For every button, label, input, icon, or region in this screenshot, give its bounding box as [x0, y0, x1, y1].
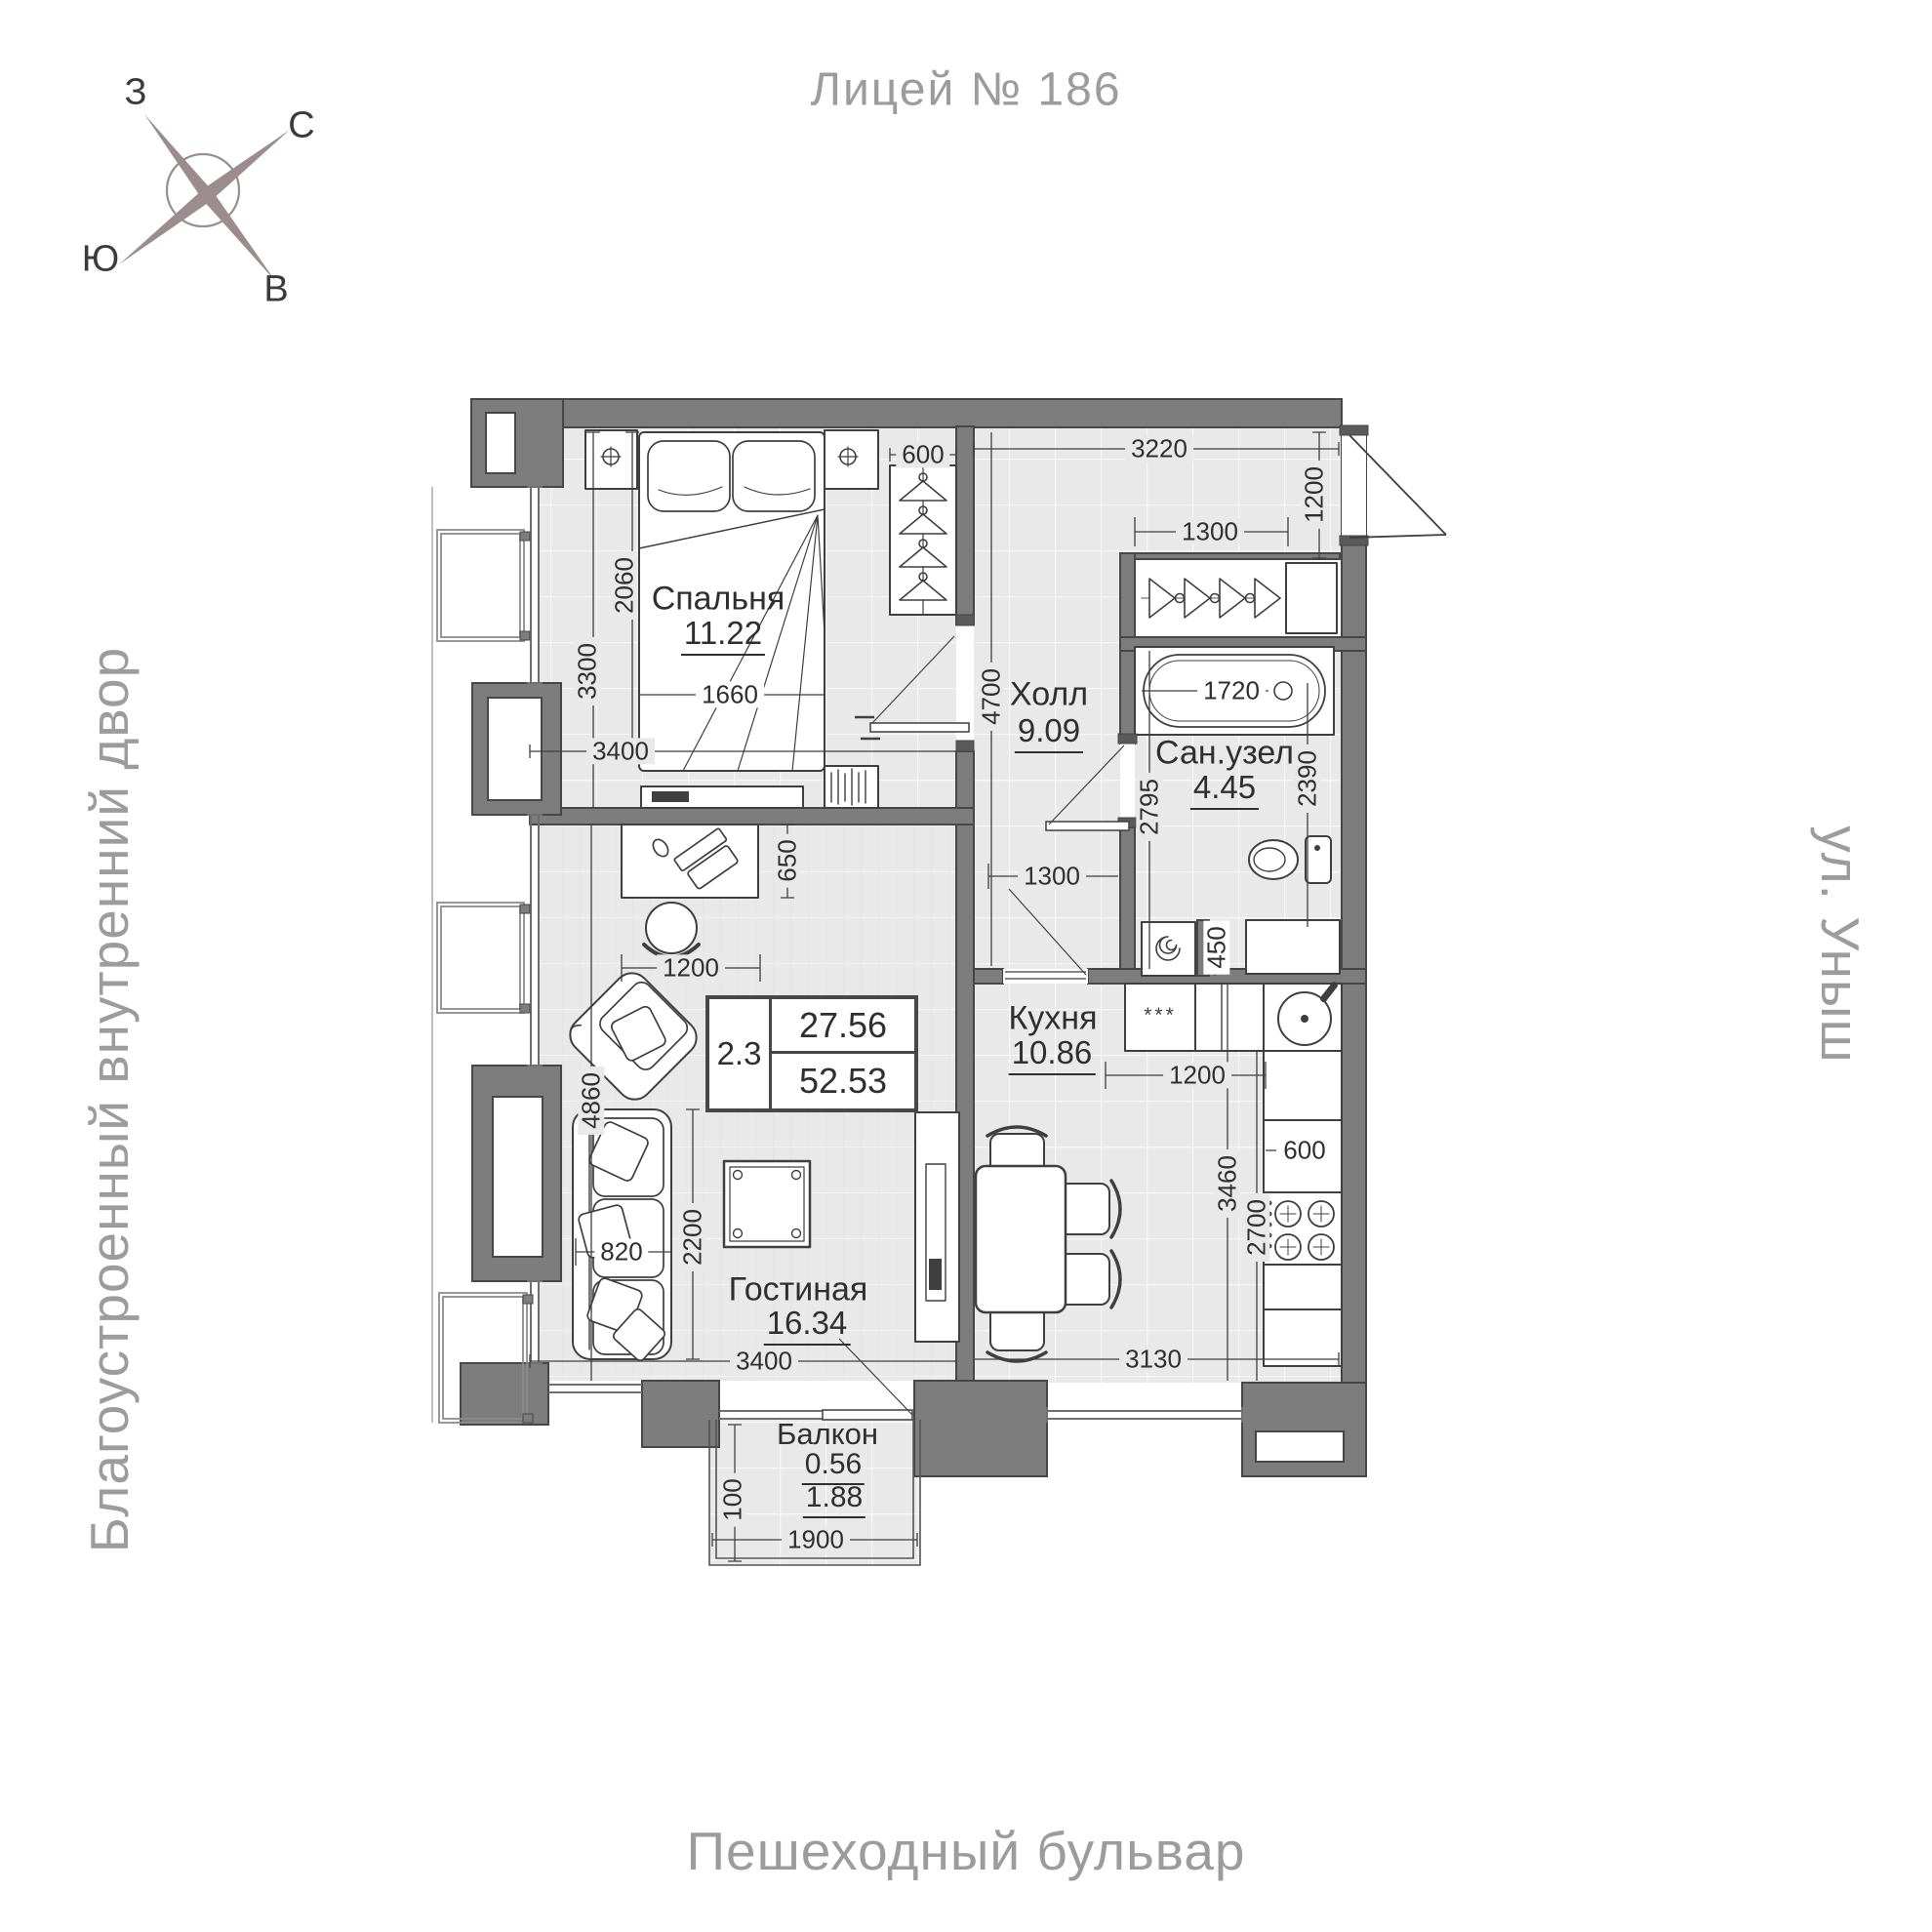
coffee-table	[724, 1161, 810, 1247]
compass-label-south: Ю	[82, 239, 119, 281]
dim-entry-1200: 1200	[1301, 461, 1327, 529]
dim-bedroom-3300: 3300	[574, 637, 600, 705]
stove	[1264, 1192, 1342, 1265]
room-area-balcony-total: 1.88	[803, 1481, 865, 1518]
dining-table	[976, 1166, 1066, 1312]
shelf-books	[825, 766, 878, 808]
kitchen-counter-top	[1195, 984, 1264, 1051]
street-label-bottom: Пешеходный бульвар	[687, 1820, 1246, 1882]
dim-bath-2795: 2795	[1136, 773, 1162, 841]
dim-counter-600: 600	[1277, 1137, 1331, 1163]
dim-sofa-820: 820	[594, 1238, 648, 1265]
nightstand-right	[825, 430, 878, 489]
street-label-right: ул. Уныш	[1809, 825, 1872, 1063]
dim-kitchen-3460: 3460	[1214, 1149, 1240, 1218]
dresser	[641, 786, 803, 808]
dim-living-4860: 4860	[578, 1067, 604, 1135]
desk-chair	[644, 903, 699, 957]
dim-bed-2060: 2060	[611, 551, 637, 620]
dim-kitchen-3130: 3130	[1119, 1346, 1187, 1372]
dim-closet-1300: 1300	[1176, 518, 1244, 544]
dim-washer-450: 450	[1203, 920, 1229, 974]
dim-bedroom-3400: 3400	[586, 738, 655, 764]
dim-balcony-1900: 1900	[782, 1526, 850, 1552]
summary-box: 2.3 27.56 52.53	[705, 995, 918, 1112]
dim-chair-1200: 1200	[657, 954, 725, 981]
railings	[437, 530, 527, 1423]
dim-living-2200: 2200	[679, 1203, 705, 1271]
dim-balcony-100: 100	[719, 1472, 745, 1526]
room-label-living: Гостиная	[729, 1271, 868, 1309]
wardrobe	[890, 465, 956, 615]
dim-bed-1660: 1660	[696, 681, 764, 707]
room-label-hall: Холл	[1010, 676, 1088, 714]
dim-kitchen-2700: 2700	[1243, 1193, 1269, 1262]
dim-hall-3220: 3220	[1125, 435, 1193, 462]
desk	[622, 825, 758, 898]
summary-rooms: 2.3	[709, 999, 772, 1108]
floorplan-page: Лицей № 186 Благоустроенный внутренний д…	[0, 0, 1932, 1932]
kitchen-counter-3	[1264, 1265, 1342, 1309]
dim-hall-4700: 4700	[978, 663, 1004, 731]
compass-rose	[119, 114, 290, 282]
dim-kitchen-1200: 1200	[1163, 1062, 1231, 1088]
summary-total-area: 52.53	[772, 1054, 914, 1108]
dim-desk-650: 650	[774, 833, 800, 887]
compass-label-east: В	[263, 269, 288, 311]
bath-vanity	[1246, 920, 1340, 974]
fridge-symbol: ***	[1144, 1004, 1177, 1027]
summary-living-area: 27.56	[772, 999, 914, 1054]
kitchen-counter-4	[1264, 1309, 1342, 1366]
compass-label-north: С	[288, 105, 314, 147]
room-area-bedroom: 11.22	[681, 615, 765, 656]
compass-label-west: З	[125, 72, 147, 114]
room-area-bathroom: 4.45	[1190, 769, 1259, 810]
dim-tub-1720: 1720	[1197, 677, 1266, 704]
room-label-balcony: Балкон	[777, 1417, 878, 1452]
dim-wardrobe-600: 600	[896, 441, 949, 467]
street-label-left: Благоустроенный внутренний двор	[78, 647, 141, 1552]
room-area-kitchen: 10.86	[1009, 1034, 1096, 1075]
room-label-bedroom: Спальня	[652, 581, 785, 619]
room-area-balcony: 0.56	[802, 1448, 865, 1485]
dim-hall-1300: 1300	[1018, 863, 1086, 889]
room-label-kitchen: Кухня	[1009, 1000, 1098, 1038]
room-area-living: 16.34	[764, 1305, 851, 1346]
dim-bath-2390: 2390	[1294, 745, 1320, 813]
tv-unit	[915, 1112, 959, 1342]
shoe-cabinet	[1286, 563, 1337, 633]
kitchen-counter-1	[1264, 1051, 1342, 1120]
dim-living-3400: 3400	[730, 1348, 798, 1374]
room-label-bathroom: Сан.узел	[1155, 735, 1294, 773]
floorplan-drawing	[0, 0, 1932, 1932]
room-area-hall: 9.09	[1015, 712, 1083, 753]
page-title: Лицей № 186	[810, 63, 1121, 117]
kitchen-sink	[1264, 981, 1342, 1051]
